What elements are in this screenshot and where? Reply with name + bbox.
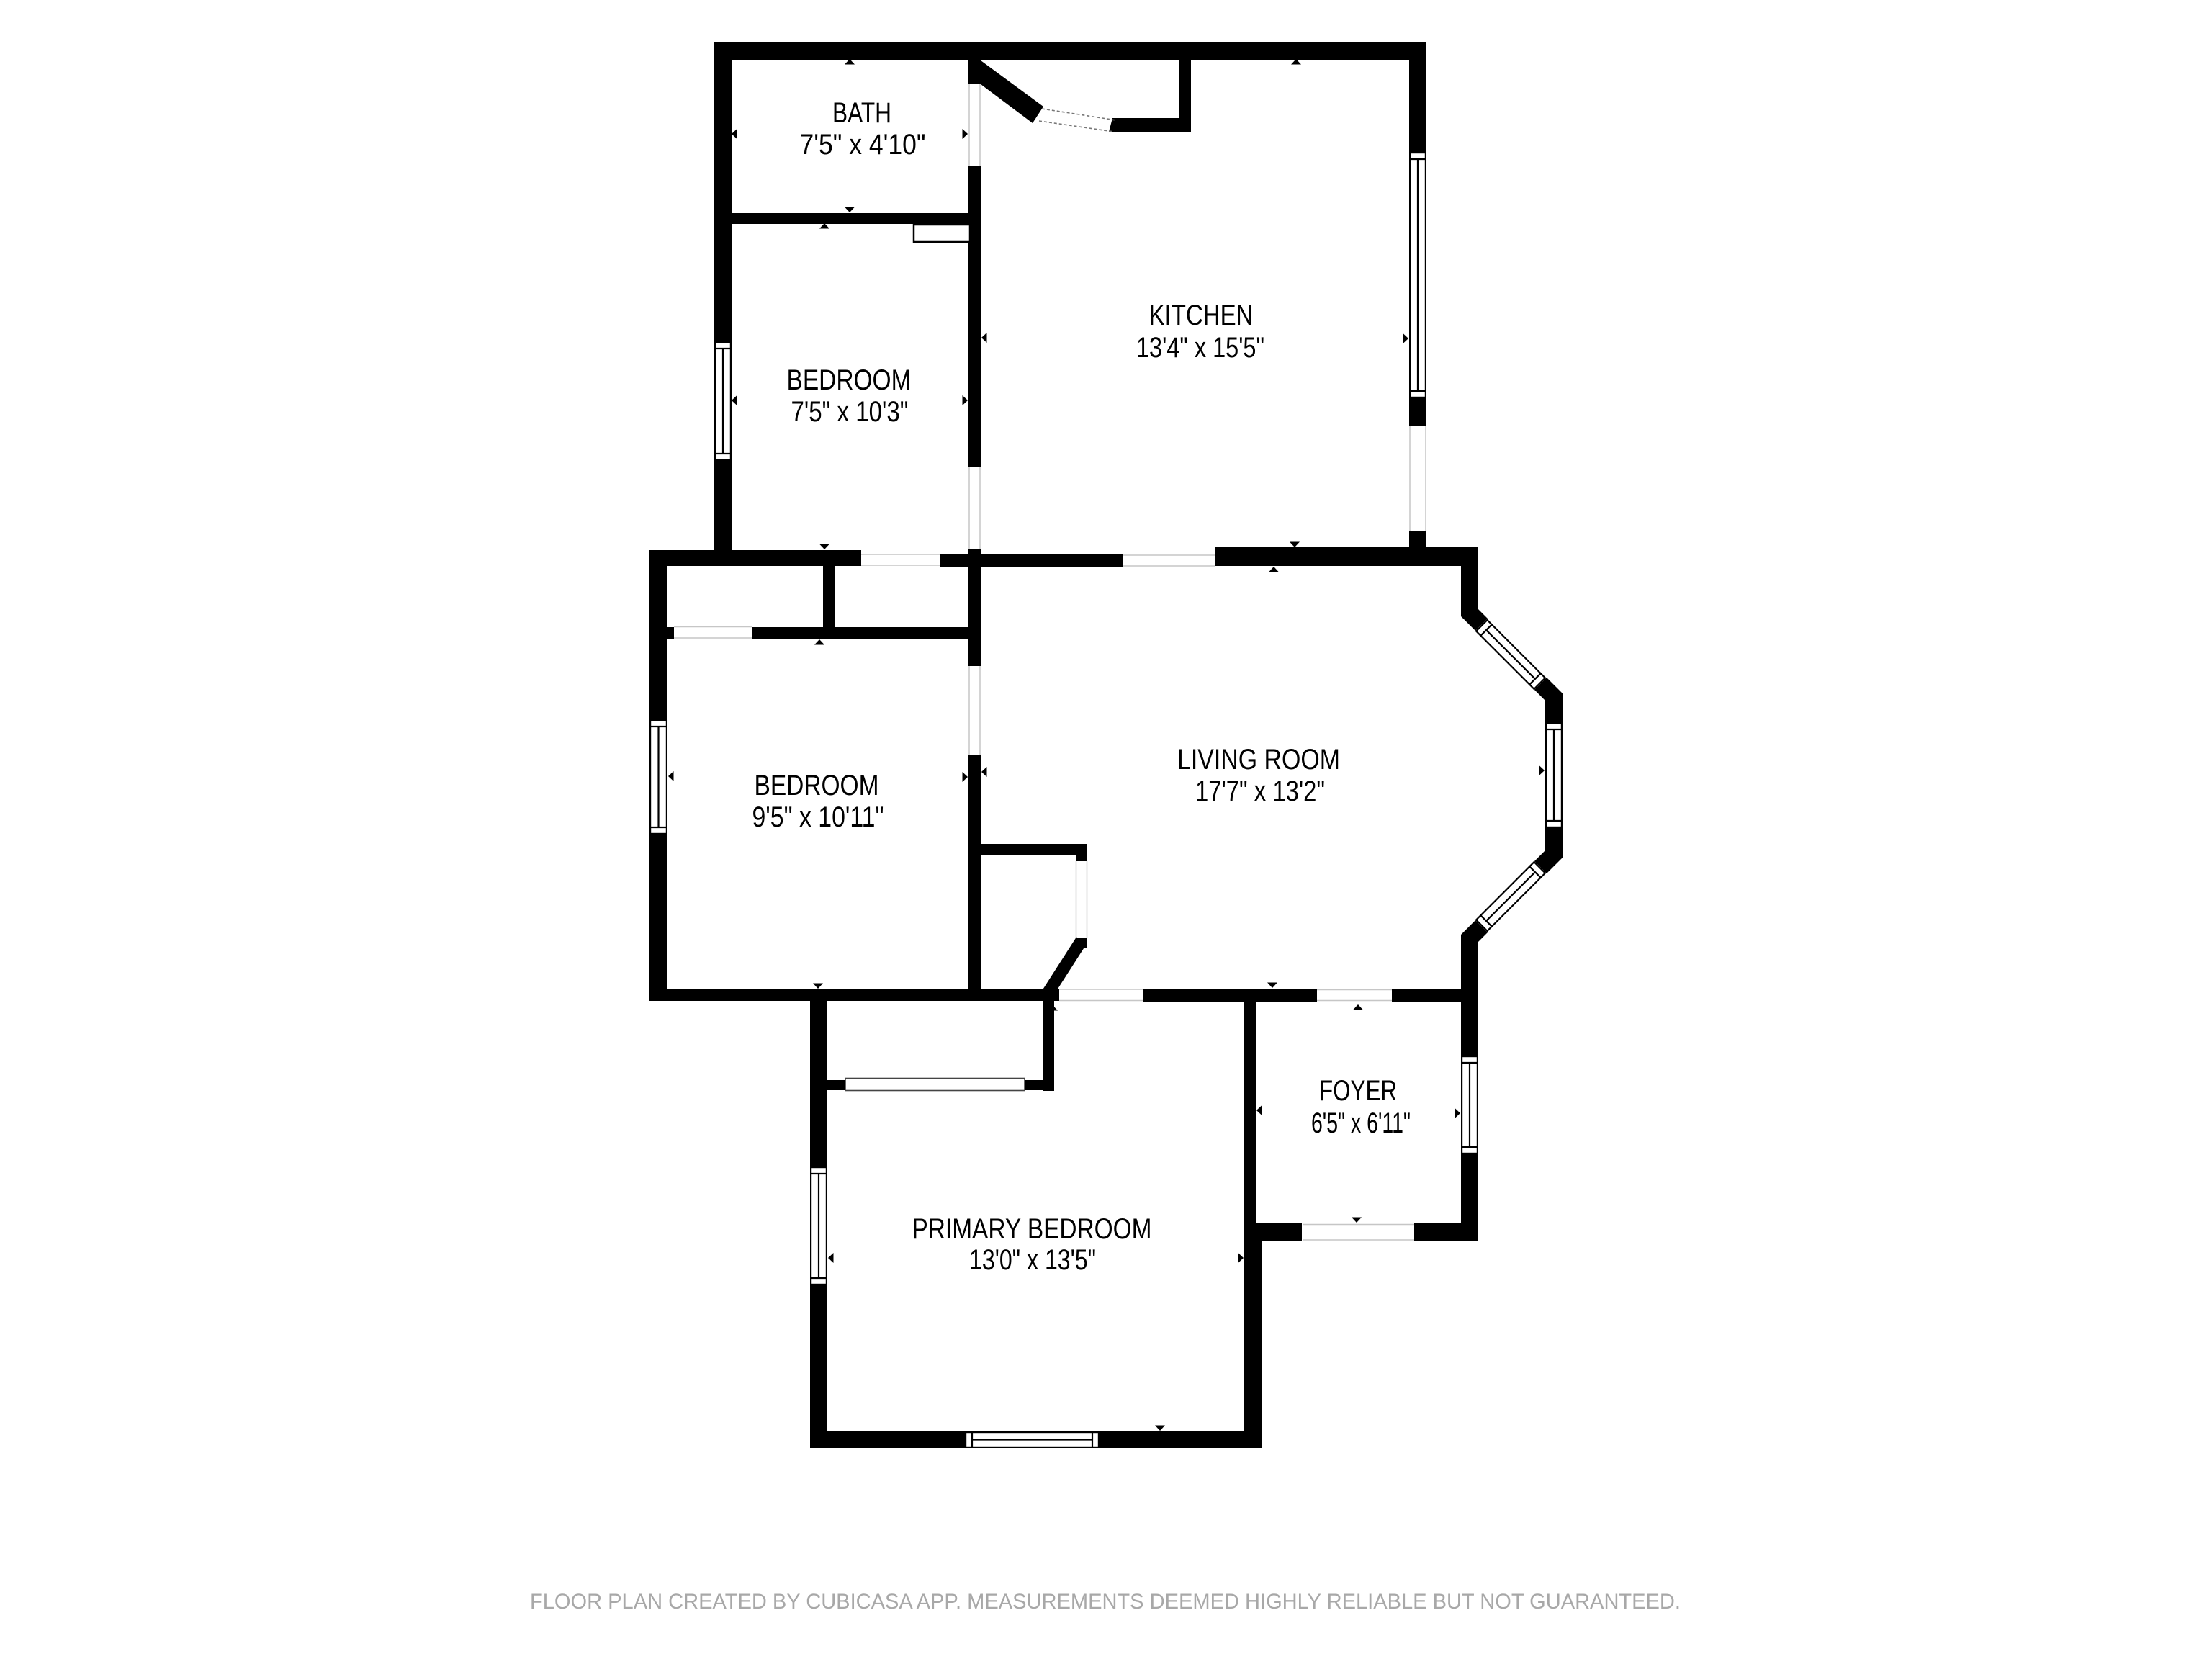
svg-text:17'7" x 13'2": 17'7" x 13'2" [1195,775,1325,807]
svg-text:FLOOR PLAN CREATED BY CUBICASA: FLOOR PLAN CREATED BY CUBICASA APP. MEAS… [530,1590,1681,1614]
svg-text:13'0" x 13'5": 13'0" x 13'5" [969,1244,1096,1276]
svg-text:KITCHEN: KITCHEN [1149,300,1254,331]
svg-text:BEDROOM: BEDROOM [787,364,912,396]
svg-text:BEDROOM: BEDROOM [755,770,879,801]
svg-text:LIVING ROOM: LIVING ROOM [1177,744,1340,775]
svg-text:PRIMARY BEDROOM: PRIMARY BEDROOM [912,1213,1152,1245]
svg-text:6'5" x 6'11": 6'5" x 6'11" [1311,1107,1411,1139]
svg-text:9'5" x 10'11": 9'5" x 10'11" [752,801,884,833]
svg-text:7'5" x 10'3": 7'5" x 10'3" [791,396,909,428]
svg-text:FOYER: FOYER [1319,1075,1397,1107]
svg-text:BATH: BATH [832,97,891,129]
svg-text:7'5" x 4'10": 7'5" x 4'10" [800,129,926,161]
svg-text:13'4" x 15'5": 13'4" x 15'5" [1136,332,1264,364]
